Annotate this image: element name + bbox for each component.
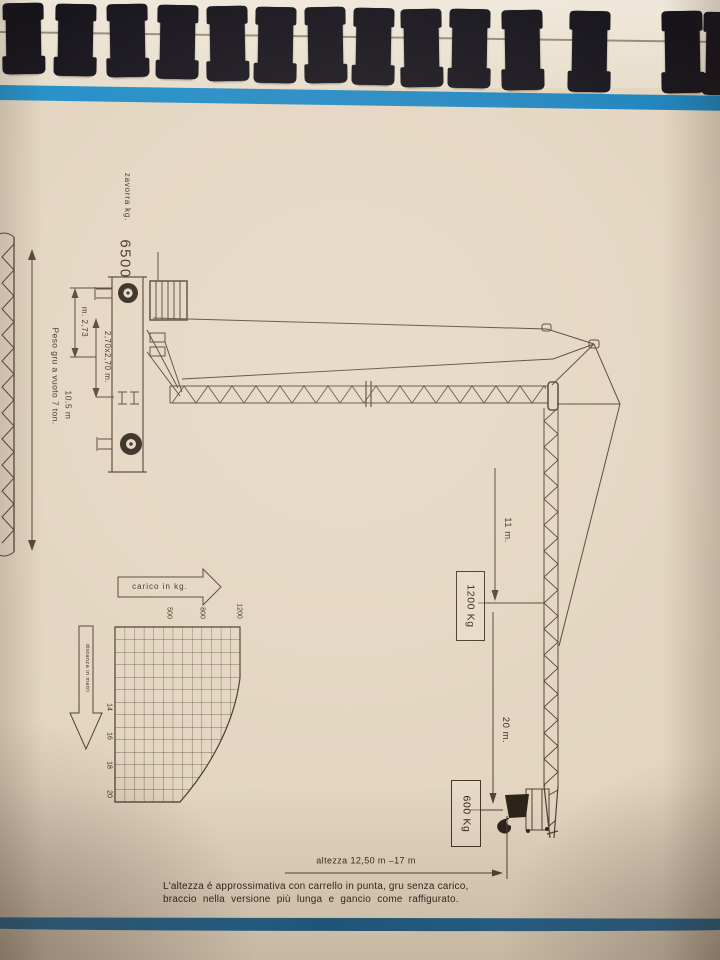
- load-1200kg-value: 1200 Kg: [465, 584, 477, 627]
- caption: L'altezza é approssimativa con carrello …: [163, 880, 515, 906]
- load-tick-800: 800: [199, 607, 206, 619]
- caption-line-2: braccio nella versione più lunga e ganci…: [163, 893, 515, 906]
- distance-tick-18: 18: [106, 761, 113, 769]
- zavorra-value: 6500: [118, 239, 133, 278]
- load-600kg-box: 600 Kg: [451, 780, 481, 847]
- load-1200kg-box: 1200 Kg: [456, 571, 485, 641]
- hook-icon: [497, 794, 529, 833]
- crane-technical-drawing: [0, 0, 720, 960]
- scanned-catalog-page: zavorra kg. 6500 m. 2,73 2,70x2,70 m. Pe…: [0, 0, 720, 960]
- load-chart: [70, 569, 240, 802]
- caption-line-1: L'altezza é approssimativa con carrello …: [163, 880, 515, 893]
- load-tick-500: 500: [166, 607, 173, 619]
- transport-height-label: 10.5 m: [64, 391, 73, 420]
- distance-tick-20: 20: [106, 790, 113, 798]
- distance-tick-14: 14: [106, 703, 113, 711]
- empty-weight-label: Peso gru a vuoto 7 ton.: [51, 327, 60, 424]
- load-tick-1200: 1200: [236, 603, 243, 619]
- zavorra-label: zavorra kg.: [123, 173, 131, 221]
- load-600kg-value: 600 Kg: [460, 795, 472, 832]
- track-width-label: m. 2,73: [80, 307, 88, 337]
- distance-axis-label: distanza in metri: [83, 644, 89, 693]
- load-curve-grid: [115, 627, 240, 802]
- transport-position-drawing: [0, 233, 14, 556]
- radius-20m-label: 20 m.: [500, 717, 510, 743]
- blue-stripe-bottom: [0, 917, 720, 931]
- base-size-label: 2,70x2,70 m.: [103, 331, 111, 383]
- load-axis-label: carico in kg.: [132, 583, 188, 591]
- radius-11m-label: 11 m.: [502, 517, 512, 543]
- height-range-label: altezza 12,50 m –17 m: [316, 857, 415, 866]
- distance-tick-16: 16: [106, 732, 113, 740]
